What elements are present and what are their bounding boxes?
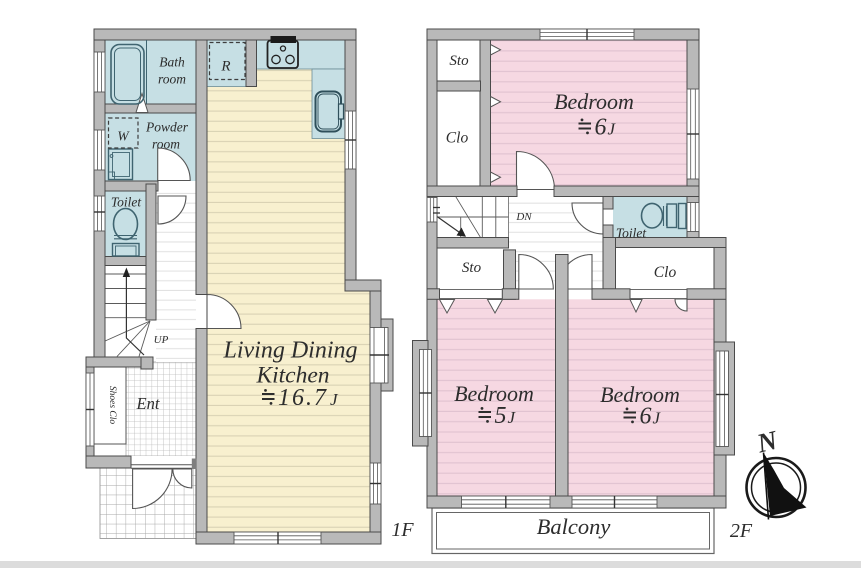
svg-text:Toilet: Toilet [111,195,143,210]
svg-text:5: 5 [495,403,507,429]
svg-text:DN: DN [515,211,532,223]
svg-text:16.7: 16.7 [278,385,328,411]
svg-text:Sto: Sto [449,53,469,69]
svg-text:Sto: Sto [462,260,482,276]
svg-text:6: 6 [640,404,652,430]
svg-text:Clo: Clo [654,264,677,281]
svg-text:Bath: Bath [159,55,185,70]
svg-text:Shoes Clo: Shoes Clo [107,386,117,425]
svg-text:UP: UP [154,334,169,346]
svg-text:1F: 1F [391,519,414,541]
svg-text:room: room [152,137,180,152]
svg-text:6: 6 [595,115,607,141]
svg-text:2F: 2F [730,520,753,542]
svg-text:room: room [158,72,186,87]
svg-text:R: R [220,59,230,75]
svg-text:Powder: Powder [145,120,189,135]
svg-text:Toilet: Toilet [616,226,648,241]
svg-text:Balcony: Balcony [537,514,611,539]
svg-text:Bedroom: Bedroom [554,89,634,114]
svg-text:Ent: Ent [136,394,160,413]
svg-text:W: W [117,129,130,144]
svg-text:Clo: Clo [446,130,469,147]
svg-text:Living Dining: Living Dining [222,338,357,364]
